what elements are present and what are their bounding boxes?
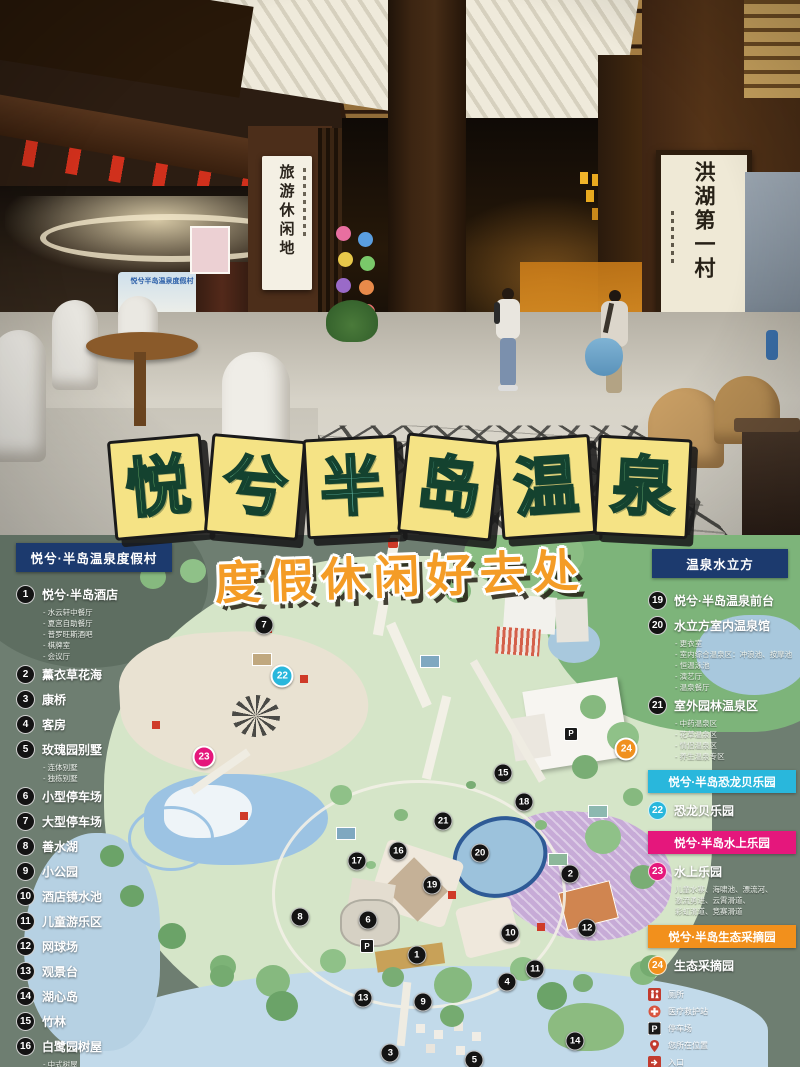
- map-marker-20: 20: [471, 844, 490, 863]
- legend-subitem: - 情侣温泉区: [648, 740, 796, 751]
- legend-label: 白鹭园树屋: [42, 1038, 102, 1055]
- map-marker-16: 16: [389, 842, 408, 861]
- legend-subitem: - 会议厅: [16, 651, 192, 662]
- blue-stool: [585, 338, 623, 376]
- map-marker-3: 3: [381, 1044, 400, 1063]
- parking-map-icon-1: P: [360, 939, 374, 953]
- side-table-top: [734, 418, 800, 432]
- legend-subitem: - 中药温泉区: [648, 718, 796, 729]
- candy-dots-decoration: [336, 226, 351, 241]
- map-marker-14: 14: [566, 1031, 585, 1050]
- icon-legend-label: 您所在位置: [668, 1040, 708, 1051]
- left-legend-items: 1悦兮·半岛酒店- 水云轩中餐厅- 夏宫自助餐厅- 普罗旺斯酒吧- 棋牌室- 会…: [16, 582, 192, 1067]
- legend-item-23: 23水上乐园: [648, 859, 796, 884]
- person-1-bag: [494, 302, 500, 324]
- legend-label: 大型停车场: [42, 813, 102, 830]
- left-legend: 悦兮·半岛温泉度假村 1悦兮·半岛酒店- 水云轩中餐厅- 夏宫自助餐厅- 普罗旺…: [16, 543, 192, 1067]
- legend-number: 7: [16, 812, 35, 831]
- draped-chair-1: [0, 330, 46, 462]
- legend-item-11: 11儿童游乐区: [16, 909, 192, 934]
- legend-section-bar: 悦兮·半岛水上乐园: [648, 831, 796, 854]
- legend-subitem: - 连体别墅: [16, 762, 192, 773]
- title-char-tile: 悦: [106, 433, 208, 541]
- right-scroll-sign: 洪湖第一村: [656, 150, 752, 326]
- map-marker-19: 19: [423, 876, 442, 895]
- legend-item-15: 15竹林: [16, 1009, 192, 1034]
- legend-label: 善水湖: [42, 838, 78, 855]
- title-tiles: 悦兮半岛温泉: [90, 437, 710, 537]
- title-char-tile: 岛: [397, 432, 501, 541]
- table-leg: [134, 352, 146, 426]
- icon-legend-row: 厕所: [648, 986, 796, 1003]
- diy-banner-header: 悦兮半岛温泉度假村: [118, 272, 206, 286]
- map-marker-11: 11: [526, 960, 545, 979]
- title-char-tile: 温: [495, 434, 596, 540]
- legend-item-2: 2薰衣草花海: [16, 662, 192, 687]
- map-marker-15: 15: [494, 763, 513, 782]
- side-table-right: [742, 428, 800, 535]
- legend-number: 15: [16, 1012, 35, 1031]
- right-scroll-text: 洪湖第一村: [689, 155, 719, 321]
- legend-item-21: 21室外园林温泉区: [648, 693, 796, 718]
- legend-item-3: 3康桥: [16, 687, 192, 712]
- parking-icon: P: [648, 1022, 661, 1035]
- legend-subitem: - 更衣室: [648, 638, 796, 649]
- map-marker-10: 10: [501, 923, 520, 942]
- legend-subitem: 儿童水寨、海啸池、漂流河、: [648, 884, 796, 895]
- right-legend: 温泉水立方 19悦兮·半岛温泉前台20水立方室内温泉馆- 更衣室- 室内综合温泉…: [648, 549, 796, 1067]
- legend-item-9: 9小公园: [16, 859, 192, 884]
- legend-item-7: 7大型停车场: [16, 809, 192, 834]
- legend-subitem: - 独栋别墅: [16, 773, 192, 784]
- legend-number: 24: [648, 956, 667, 975]
- legend-label: 室外园林温泉区: [674, 697, 758, 714]
- icon-legend-label: 停车场: [668, 1023, 692, 1034]
- map-marker-22: 22: [271, 664, 294, 687]
- map-marker-18: 18: [515, 793, 534, 812]
- legend-label: 湖心岛: [42, 988, 78, 1005]
- icon-legend-row: 医疗救护站: [648, 1003, 796, 1020]
- title-char: 半: [318, 453, 385, 520]
- legend-item-5: 5玫瑰园别墅: [16, 737, 192, 762]
- legend-subitem: 彩虹滑道、竞赛滑道: [648, 906, 796, 917]
- legend-label: 水上乐园: [674, 863, 722, 880]
- parking-map-icon-2: P: [564, 727, 578, 741]
- legend-number: 3: [16, 690, 35, 709]
- legend-number: 22: [648, 801, 667, 820]
- legend-label: 观景台: [42, 963, 78, 980]
- legend-subitem: - 夏宫自助餐厅: [16, 618, 192, 629]
- left-scroll-text: 旅游休闲地: [277, 156, 298, 290]
- left-scroll-side-marks: [303, 166, 306, 236]
- icon-legend-label: 入口: [668, 1057, 684, 1067]
- legend-label: 网球场: [42, 938, 78, 955]
- notice-card: [190, 226, 230, 274]
- legend-subitem: - 室内综合温泉区：冲浪池、按摩池: [648, 649, 796, 660]
- person-1-shoes: [498, 385, 518, 391]
- legend-item-22: 22恐龙贝乐园: [648, 798, 796, 823]
- legend-item-8: 8善水湖: [16, 834, 192, 859]
- legend-label: 客房: [42, 716, 66, 733]
- map-marker-21: 21: [434, 812, 453, 831]
- legend-item-16: 16白鹭园树屋: [16, 1034, 192, 1059]
- legend-number: 9: [16, 862, 35, 881]
- potted-plant: [326, 300, 378, 342]
- person-1-legs: [500, 338, 516, 386]
- legend-subitem: - 中式树屋: [16, 1059, 192, 1067]
- legend-item-12: 12网球场: [16, 934, 192, 959]
- legend-label: 竹林: [42, 1013, 66, 1030]
- legend-section-bar: 悦兮·半岛恐龙贝乐园: [648, 770, 796, 793]
- legend-number: 1: [16, 585, 35, 604]
- right-scroll-signature: [671, 207, 674, 263]
- legend-subitem: - 普罗旺斯酒吧: [16, 629, 192, 640]
- legend-label: 小公园: [42, 863, 78, 880]
- post-canvas: 悦兮半岛温泉度假村 手工DIY 旅游休闲地 洪湖第一村: [0, 0, 800, 1067]
- legend-item-13: 13观景台: [16, 959, 192, 984]
- map-marker-2: 2: [561, 864, 580, 883]
- title-char: 悦: [123, 452, 192, 521]
- legend-number: 20: [648, 616, 667, 635]
- right-legend-items: 19悦兮·半岛温泉前台20水立方室内温泉馆- 更衣室- 室内综合温泉区：冲浪池、…: [648, 588, 796, 762]
- legend-label: 玫瑰园别墅: [42, 741, 102, 758]
- legend-subitem: - 恒温泳池: [648, 660, 796, 671]
- left-scroll-sign: 旅游休闲地: [262, 156, 312, 290]
- title-char: 泉: [609, 453, 676, 520]
- legend-number: 23: [648, 862, 667, 881]
- legend-subitem: - 演艺厅: [648, 671, 796, 682]
- legend-subitem: - 温泉餐厅: [648, 682, 796, 693]
- map-marker-6: 6: [359, 911, 378, 930]
- legend-number: 13: [16, 962, 35, 981]
- map-marker-9: 9: [414, 993, 433, 1012]
- location-icon: [648, 1039, 661, 1053]
- title-char: 温: [511, 453, 579, 521]
- legend-item-10: 10酒店镜水池: [16, 884, 192, 909]
- legend-number: 10: [16, 887, 35, 906]
- legend-number: 12: [16, 937, 35, 956]
- legend-subitem: - 棋牌室: [16, 640, 192, 651]
- title-char-tile: 兮: [203, 433, 305, 541]
- legend-label: 小型停车场: [42, 788, 102, 805]
- person-1: [492, 288, 524, 398]
- icon-legend-row: P 停车场: [648, 1020, 796, 1037]
- legend-item-20: 20水立方室内温泉馆: [648, 613, 796, 638]
- legend-number: 2: [16, 665, 35, 684]
- legend-label: 康桥: [42, 691, 66, 708]
- legend-number: 14: [16, 987, 35, 1006]
- legend-subitem: 激流勇进、云霄滑道、: [648, 895, 796, 906]
- legend-label: 水立方室内温泉馆: [674, 617, 770, 634]
- right-legend-sections: 悦兮·半岛恐龙贝乐园22恐龙贝乐园悦兮·半岛水上乐园23水上乐园儿童水寨、海啸池…: [648, 770, 796, 978]
- lantern-cluster: [580, 172, 588, 184]
- map-marker-8: 8: [291, 907, 310, 926]
- legend-number: 21: [648, 696, 667, 715]
- legend-label: 酒店镜水池: [42, 888, 102, 905]
- legend-item-24: 24生态采摘园: [648, 953, 796, 978]
- legend-number: 8: [16, 837, 35, 856]
- legend-number: 16: [16, 1037, 35, 1056]
- legend-subitem: - 花草温泉区: [648, 729, 796, 740]
- map-marker-24: 24: [615, 737, 638, 760]
- map-marker-12: 12: [578, 919, 597, 938]
- legend-section-bar: 悦兮·半岛生态采摘园: [648, 925, 796, 948]
- legend-item-6: 6小型停车场: [16, 784, 192, 809]
- legend-item-4: 4客房: [16, 712, 192, 737]
- lattice-panel: [744, 0, 800, 98]
- legend-number: 6: [16, 787, 35, 806]
- legend-number: 5: [16, 740, 35, 759]
- map-icon-legend: 厕所 医疗救护站 P 停车场 您所在位置 入口: [648, 986, 796, 1067]
- map-marker-5: 5: [465, 1051, 484, 1067]
- map-marker-23: 23: [193, 745, 216, 768]
- restroom-icon: [648, 988, 661, 1001]
- legend-number: 11: [16, 912, 35, 931]
- map-marker-4: 4: [498, 972, 517, 991]
- title-char-tile: 泉: [593, 435, 692, 540]
- title-char: 岛: [413, 452, 483, 522]
- legend-label: 生态采摘园: [674, 957, 734, 974]
- legend-label: 薰衣草花海: [42, 666, 102, 683]
- map-marker-7: 7: [255, 616, 274, 635]
- title-char-tile: 半: [302, 435, 401, 540]
- legend-number: 4: [16, 715, 35, 734]
- corner-roof: [0, 0, 254, 98]
- legend-item-14: 14湖心岛: [16, 984, 192, 1009]
- icon-legend-label: 医疗救护站: [668, 1006, 708, 1017]
- legend-subitem: - 养生温泉专区: [648, 751, 796, 762]
- entrance-icon: [648, 1056, 661, 1067]
- icon-legend-row: 您所在位置: [648, 1037, 796, 1054]
- icon-legend-label: 厕所: [668, 989, 684, 1000]
- water-bottle: [766, 330, 778, 360]
- title-char: 兮: [220, 452, 289, 521]
- svg-text:P: P: [651, 1024, 657, 1034]
- map-marker-1: 1: [407, 946, 426, 965]
- map-marker-17: 17: [347, 852, 366, 871]
- icon-legend-row: 入口: [648, 1054, 796, 1067]
- map-marker-13: 13: [354, 988, 373, 1007]
- medical-icon: [648, 1005, 661, 1018]
- legend-label: 恐龙贝乐园: [674, 802, 734, 819]
- legend-label: 儿童游乐区: [42, 913, 102, 930]
